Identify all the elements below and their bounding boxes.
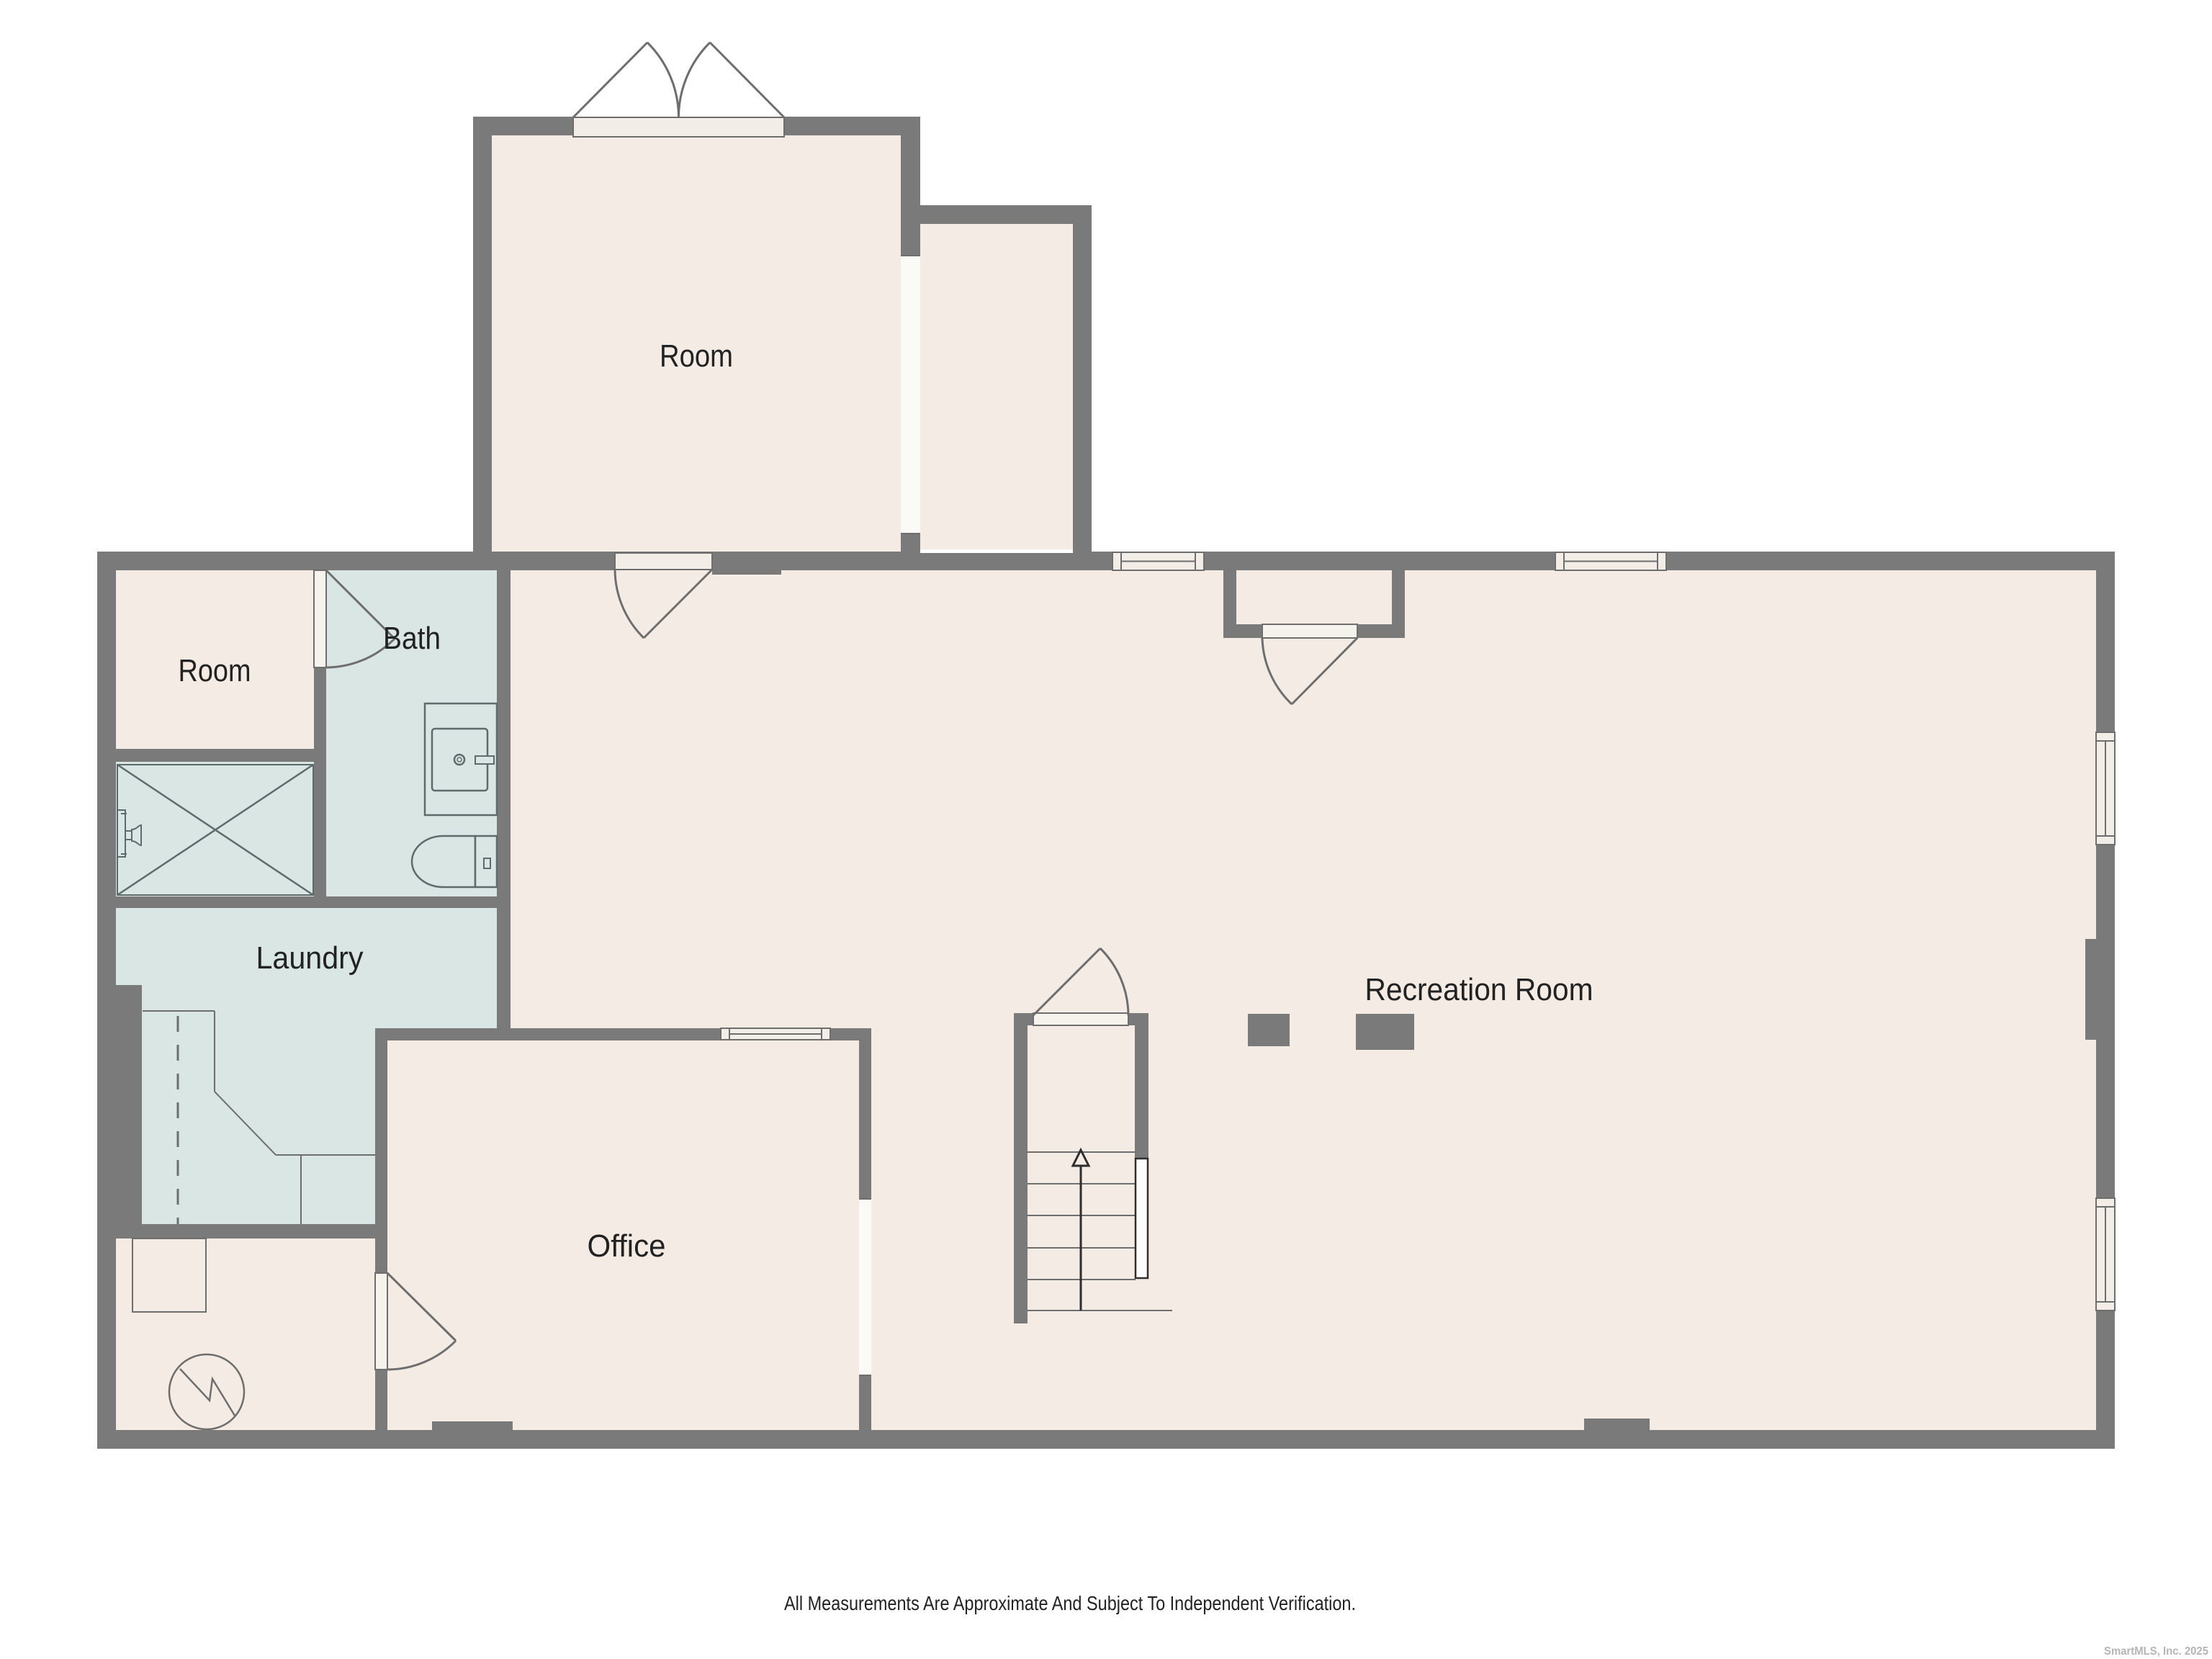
svg-text:Laundry: Laundry <box>256 940 364 976</box>
svg-text:Room: Room <box>660 338 733 374</box>
svg-text:Office: Office <box>588 1228 666 1264</box>
svg-text:Recreation Room: Recreation Room <box>1365 972 1593 1007</box>
svg-text:Room: Room <box>179 653 251 688</box>
svg-text:Bath: Bath <box>383 621 441 656</box>
svg-text:All Measurements Are Approxima: All Measurements Are Approximate And Sub… <box>784 1592 1356 1614</box>
svg-text:SmartMLS, Inc. 2025: SmartMLS, Inc. 2025 <box>2104 1645 2208 1658</box>
